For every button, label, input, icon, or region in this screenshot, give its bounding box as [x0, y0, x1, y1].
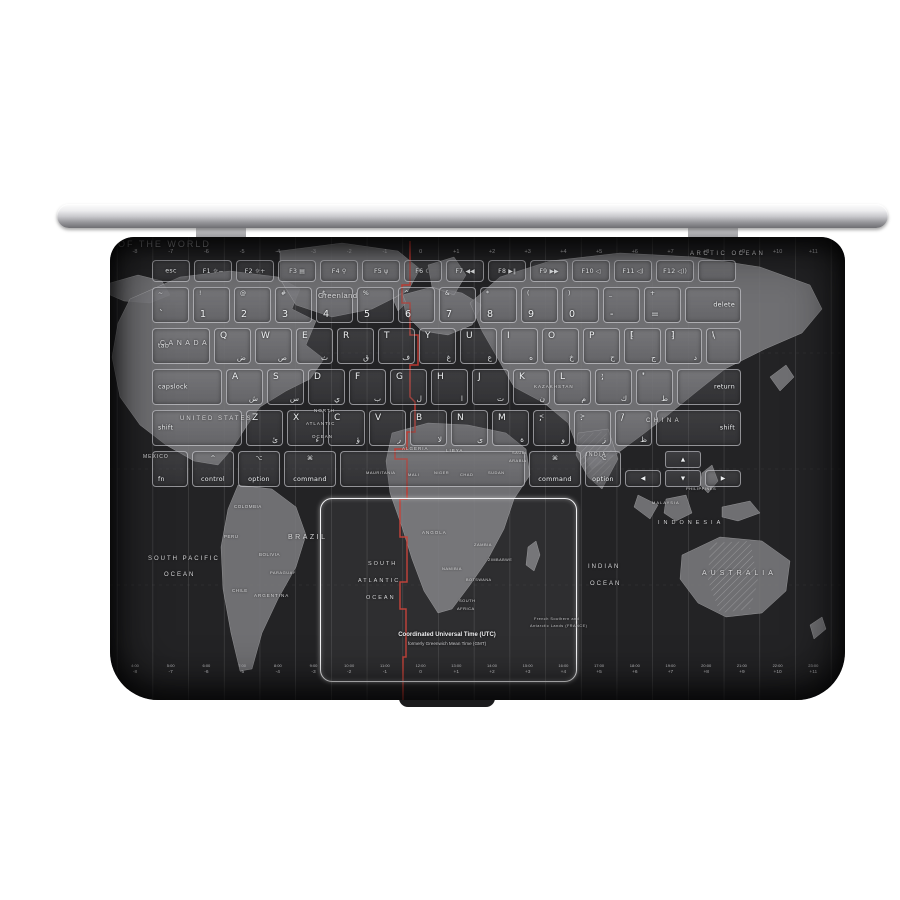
key-main-legend: 8: [487, 309, 493, 320]
key-tab: tab: [152, 328, 210, 364]
key-main-legend: Z: [252, 413, 258, 423]
key-l: Lم: [554, 369, 591, 405]
key-top-legend: ^: [193, 455, 233, 462]
key-0: )0: [562, 287, 599, 323]
key-main-legend: K: [519, 372, 525, 382]
laptop-product-photo: escF1☼−F2☼+F3▤F4⚲F5ψF6☾F7◀◀F8▶∥F9▶▶F10◁F…: [0, 0, 900, 900]
key-h: Hا: [431, 369, 468, 405]
key-main-legend: 3: [282, 309, 288, 320]
key-top-legend: ⌘: [285, 455, 335, 462]
key-top-legend: (: [527, 290, 529, 297]
key-period: >.ز: [574, 410, 611, 446]
key-main-legend: .: [580, 413, 583, 423]
key-f2: F2☼+: [236, 260, 274, 282]
key-main-legend: Y: [425, 331, 431, 341]
key-main-legend: ▶: [721, 475, 726, 482]
key-arabic-legend: ئ: [272, 435, 278, 444]
key-top-legend: +: [650, 290, 655, 297]
key-k: Kن: [513, 369, 550, 405]
key-s: Sس: [267, 369, 304, 405]
key-option-right: ⌥option: [585, 451, 621, 487]
key-arabic-legend: ظ: [640, 435, 647, 444]
key-icon-f9: ▶▶: [549, 268, 558, 275]
key-main-legend: P: [589, 331, 594, 341]
key-main-legend: F2: [245, 268, 253, 275]
key-top-legend: !: [199, 290, 201, 297]
key-icon-f6: ☾: [425, 268, 430, 275]
key-main-legend: F4: [332, 268, 340, 275]
key-main-legend: 6: [405, 309, 411, 320]
key-minus: _-: [603, 287, 640, 323]
key-top-legend: ⌘: [530, 455, 580, 462]
key-top-legend: &: [445, 290, 450, 297]
key-main-legend: capslock: [153, 383, 221, 390]
key-arabic-legend: ا: [461, 394, 463, 403]
key-main-legend: 2: [241, 309, 247, 320]
key-arrow-down: ▼: [665, 470, 701, 487]
key-main-legend: 1: [200, 309, 206, 320]
key-equals: +=: [644, 287, 681, 323]
key-semicolon: :;ك: [595, 369, 632, 405]
key-main-legend: L: [560, 372, 565, 382]
keyboard-row-2: tabQضWصEثRقTفYغUعIهOخPح{[ج}]د|\: [152, 328, 741, 364]
key-6: ^6: [398, 287, 435, 323]
key-main-legend: option: [239, 476, 279, 483]
key-main-legend: tab: [153, 342, 209, 349]
key-esc: esc: [152, 260, 190, 282]
key-main-legend: J: [478, 372, 481, 382]
key-main-legend: Q: [220, 331, 227, 341]
key-arabic-legend: خ: [569, 353, 574, 362]
key-arabic-legend: ف: [402, 353, 410, 362]
keyboard-row-5: fn^control⌥option⌘command⌘command⌥option…: [152, 451, 741, 487]
key-arrow-right: ▶: [705, 470, 741, 487]
key-f7: F7◀◀: [446, 260, 484, 282]
key-main-legend: control: [193, 476, 233, 483]
key-main-legend: V: [375, 413, 381, 423]
key-w: Wص: [255, 328, 292, 364]
key-f: Fب: [349, 369, 386, 405]
key-main-legend: B: [416, 413, 422, 423]
key-g: Gل: [390, 369, 427, 405]
key-comma: <,و: [533, 410, 570, 446]
key-icon-f12: ◁)): [678, 268, 687, 275]
key-main-legend: F12: [663, 268, 675, 275]
key-backslash: |\: [706, 328, 741, 364]
key-main-legend: esc: [153, 267, 189, 274]
key-arrow-left: ◀: [625, 470, 661, 487]
key-delete: delete: [685, 287, 741, 323]
key-main-legend: U: [466, 331, 473, 341]
key-main-legend: delete: [686, 301, 740, 308]
key-main-legend: 9: [528, 309, 534, 320]
key-top-legend: #: [281, 290, 286, 297]
key-main-legend: shift: [153, 424, 241, 431]
key-shift-right: shift: [656, 410, 741, 446]
key-main-legend: C: [334, 413, 340, 423]
key-f10: F10◁: [572, 260, 610, 282]
key-i: Iه: [501, 328, 538, 364]
key-b: Bلا: [410, 410, 447, 446]
key-f8: F8▶∥: [488, 260, 526, 282]
key-arabic-legend: ل: [417, 394, 422, 403]
key-main-legend: 5: [364, 309, 370, 320]
key-main-legend: [: [630, 331, 634, 341]
key-e: Eث: [296, 328, 333, 364]
key-main-legend: S: [273, 372, 279, 382]
key-main-legend: D: [314, 372, 321, 382]
key-icon-f11: ◁): [637, 268, 644, 275]
key-z: Zئ: [246, 410, 283, 446]
key-arabic-legend: و: [561, 435, 565, 444]
key-option-left: ⌥option: [238, 451, 280, 487]
key-arabic-legend: ر: [397, 435, 401, 444]
key-f1: F1☼−: [194, 260, 232, 282]
key-f4: F4⚲: [320, 260, 358, 282]
key-arabic-legend: لا: [438, 435, 442, 444]
key-top-legend: %: [363, 290, 369, 297]
key-main-legend: -: [610, 309, 613, 320]
key-backtick: ~`: [152, 287, 189, 323]
key-arabic-legend: ب: [374, 394, 381, 403]
key-top-legend: ): [568, 290, 570, 297]
key-main-legend: \: [712, 331, 715, 341]
key-capslock: capslock: [152, 369, 222, 405]
key-3: #3: [275, 287, 312, 323]
key-quote: "'ط: [636, 369, 673, 405]
key-1: !1: [193, 287, 230, 323]
key-icon-f1: ☼−: [213, 268, 223, 275]
key-main-legend: F11: [622, 268, 634, 275]
key-space: [340, 451, 525, 487]
key-main-legend: W: [261, 331, 270, 341]
key-main-legend: `: [159, 309, 164, 320]
laptop-screen-edge: [57, 204, 888, 228]
keyboard-row-3: capslockAشSسDيFبGلHاJتKنLم:;ك"'طreturn: [152, 369, 741, 405]
key-arabic-legend: غ: [447, 353, 451, 362]
key-main-legend: F5: [374, 268, 382, 275]
key-main-legend: R: [343, 331, 349, 341]
key-arabic-legend: م: [581, 394, 586, 403]
key-command-left: ⌘command: [284, 451, 336, 487]
key-4: $4: [316, 287, 353, 323]
key-bracket-close: }]د: [665, 328, 702, 364]
key-m: Mة: [492, 410, 529, 446]
key-main-legend: =: [651, 309, 659, 320]
key-main-legend: F: [355, 372, 360, 382]
keyboard-row-0: escF1☼−F2☼+F3▤F4⚲F5ψF6☾F7◀◀F8▶∥F9▶▶F10◁F…: [152, 260, 736, 282]
key-c: Cؤ: [328, 410, 365, 446]
keyboard-row-1: ~`!1@2#3$4%5^6&7*8(9)0_-+=delete: [152, 287, 741, 323]
key-arabic-legend: ي: [334, 394, 340, 403]
key-main-legend: F10: [582, 268, 594, 275]
key-arabic-legend: ص: [278, 353, 287, 362]
key-main-legend: F8: [498, 268, 506, 275]
key-icon-f10: ◁: [596, 268, 601, 275]
key-main-legend: G: [396, 372, 403, 382]
key-top-legend: $: [322, 290, 326, 297]
key-arabic-legend: ه: [529, 353, 533, 362]
key-main-legend: F1: [203, 268, 211, 275]
key-y: Yغ: [419, 328, 456, 364]
key-arabic-legend: ة: [520, 435, 524, 444]
key-main-legend: ': [642, 372, 644, 382]
key-f12: F12◁)): [656, 260, 694, 282]
key-p: Pح: [583, 328, 620, 364]
key-q: Qض: [214, 328, 251, 364]
key-main-legend: T: [384, 331, 390, 341]
key-return: return: [677, 369, 741, 405]
key-power: [698, 260, 736, 282]
key-r: Rق: [337, 328, 374, 364]
key-main-legend: 7: [446, 309, 452, 320]
key-bracket-open: {[ج: [624, 328, 661, 364]
key-main-legend: F7: [455, 268, 463, 275]
key-icon-f2: ☼+: [255, 268, 265, 275]
key-7: &7: [439, 287, 476, 323]
key-arabic-legend: س: [290, 394, 299, 403]
key-main-legend: 4: [323, 309, 329, 320]
key-main-legend: ]: [671, 331, 675, 341]
key-f6: F6☾: [404, 260, 442, 282]
key-j: Jت: [472, 369, 509, 405]
key-arabic-legend: ت: [497, 394, 504, 403]
key-f9: F9▶▶: [530, 260, 568, 282]
key-arabic-legend: ك: [621, 394, 627, 403]
key-main-legend: option: [586, 476, 620, 483]
key-main-legend: /: [621, 413, 624, 423]
key-main-legend: H: [437, 372, 444, 382]
key-main-legend: command: [530, 476, 580, 483]
key-top-legend: ^: [404, 290, 409, 297]
key-icon-f7: ◀◀: [465, 268, 474, 275]
key-main-legend: X: [293, 413, 299, 423]
key-arabic-legend: ى: [477, 435, 483, 444]
key-arabic-legend: ش: [249, 394, 258, 403]
key-control: ^control: [192, 451, 234, 487]
key-9: (9: [521, 287, 558, 323]
key-main-legend: ◀: [641, 475, 646, 482]
key-v: Vر: [369, 410, 406, 446]
key-main-legend: F6: [415, 268, 423, 275]
key-top-legend: ~: [158, 290, 163, 297]
key-top-legend: ⌥: [586, 455, 620, 462]
key-o: Oخ: [542, 328, 579, 364]
key-top-legend: @: [240, 290, 246, 297]
keyboard-row-4: shiftZئXءCؤVرBلاNىMة<,و>.ز?/ظshift: [152, 410, 741, 446]
keyboard: escF1☼−F2☼+F3▤F4⚲F5ψF6☾F7◀◀F8▶∥F9▶▶F10◁F…: [110, 237, 845, 700]
key-icon-f3: ▤: [299, 268, 305, 275]
key-arrow-updown: ▲▼: [665, 451, 701, 487]
key-main-legend: E: [302, 331, 308, 341]
key-main-legend: ;: [601, 372, 604, 382]
key-arabic-legend: ط: [661, 394, 668, 403]
key-main-legend: F9: [539, 268, 547, 275]
key-f11: F11◁): [614, 260, 652, 282]
key-main-legend: return: [678, 383, 740, 390]
key-main-legend: F3: [289, 268, 297, 275]
key-f5: F5ψ: [362, 260, 400, 282]
key-x: Xء: [287, 410, 324, 446]
key-top-legend: _: [609, 290, 612, 297]
key-arabic-legend: ق: [363, 353, 369, 362]
laptop-deck-map-skin: escF1☼−F2☼+F3▤F4⚲F5ψF6☾F7◀◀F8▶∥F9▶▶F10◁F…: [110, 237, 845, 700]
key-main-legend: A: [232, 372, 238, 382]
key-f3: F3▤: [278, 260, 316, 282]
key-n: Nى: [451, 410, 488, 446]
key-arabic-legend: ؤ: [356, 435, 360, 444]
key-arabic-legend: ث: [321, 353, 328, 362]
key-icon-f4: ⚲: [342, 268, 346, 275]
key-top-legend: *: [486, 290, 489, 297]
key-main-legend: ,: [539, 413, 542, 423]
key-d: Dي: [308, 369, 345, 405]
key-arrow-up: ▲: [665, 451, 701, 468]
key-top-legend: ⌥: [239, 455, 279, 462]
key-u: Uع: [460, 328, 497, 364]
key-arabic-legend: ء: [315, 435, 319, 444]
key-main-legend: M: [498, 413, 506, 423]
key-fn: fn: [152, 451, 188, 487]
key-arabic-legend: ض: [237, 353, 246, 362]
key-a: Aش: [226, 369, 263, 405]
key-shift-left: shift: [152, 410, 242, 446]
key-main-legend: fn: [153, 476, 187, 483]
key-arabic-legend: ع: [488, 353, 492, 362]
key-main-legend: command: [285, 476, 335, 483]
key-arabic-legend: ن: [539, 394, 545, 403]
key-main-legend: 0: [569, 309, 575, 320]
key-main-legend: I: [507, 331, 510, 341]
key-icon-f5: ψ: [384, 268, 388, 275]
key-8: *8: [480, 287, 517, 323]
key-arabic-legend: ح: [610, 353, 615, 362]
key-arabic-legend: ج: [651, 353, 656, 362]
key-command-right: ⌘command: [529, 451, 581, 487]
key-t: Tف: [378, 328, 415, 364]
key-icon-f8: ▶∥: [508, 268, 516, 275]
key-5: %5: [357, 287, 394, 323]
key-main-legend: shift: [657, 424, 740, 431]
key-arabic-legend: د: [694, 353, 697, 362]
key-2: @2: [234, 287, 271, 323]
key-slash: ?/ظ: [615, 410, 652, 446]
key-arabic-legend: ز: [602, 435, 606, 444]
key-main-legend: O: [548, 331, 555, 341]
key-main-legend: N: [457, 413, 464, 423]
